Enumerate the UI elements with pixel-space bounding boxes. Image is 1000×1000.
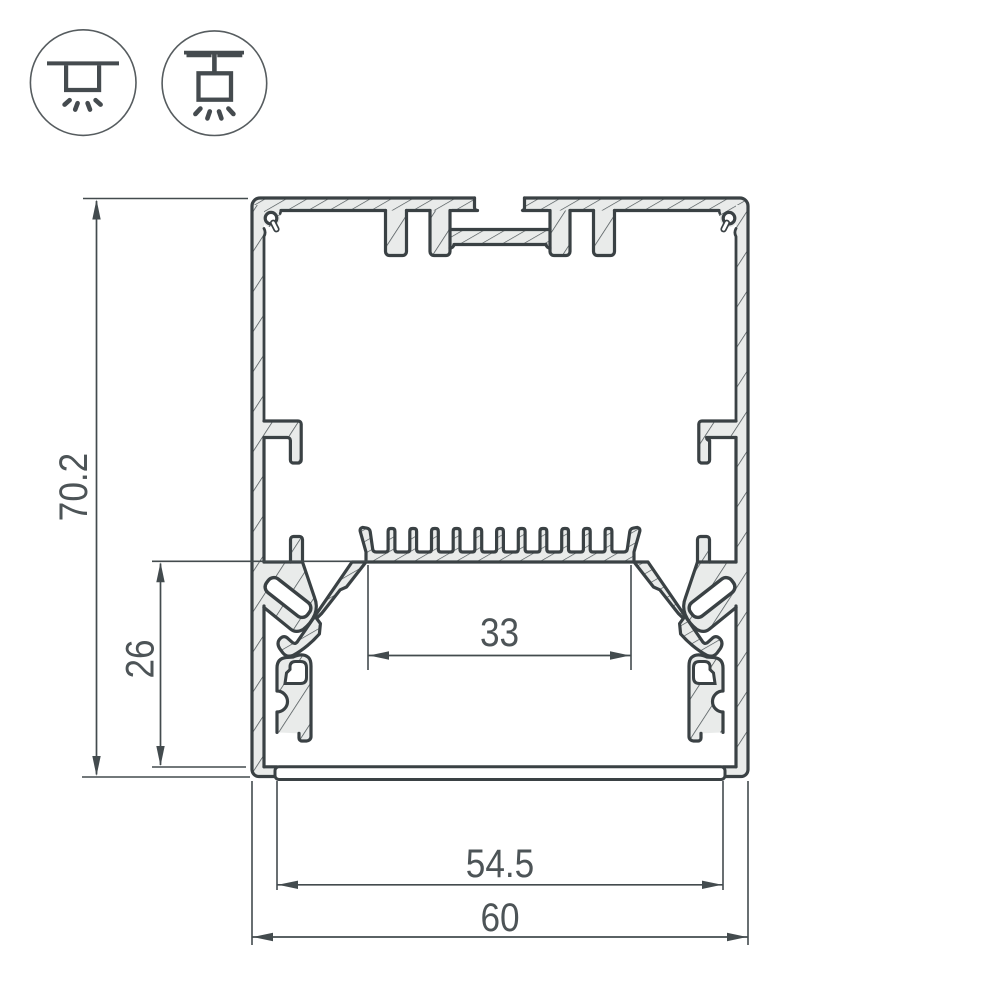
svg-text:33: 33 <box>480 610 519 655</box>
svg-text:26: 26 <box>117 639 162 678</box>
svg-text:70.2: 70.2 <box>51 453 96 521</box>
svg-text:60: 60 <box>480 895 519 940</box>
svg-text:54.5: 54.5 <box>466 841 534 886</box>
